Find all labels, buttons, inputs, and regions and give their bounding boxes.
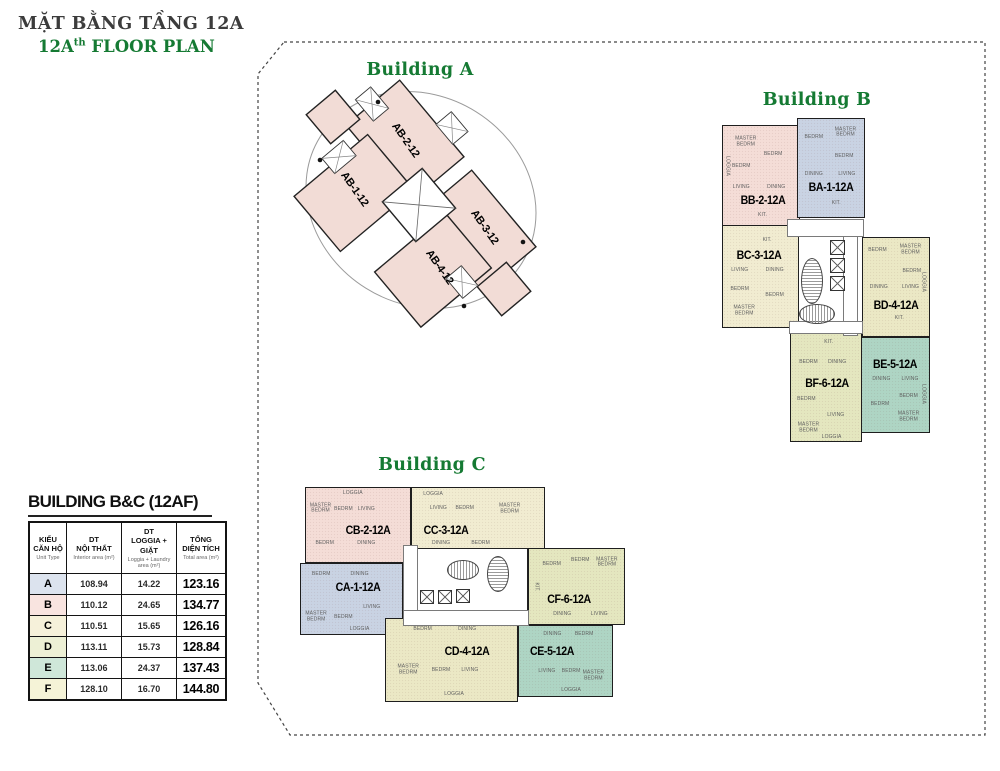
room-label: BEDRM [334, 506, 353, 512]
unit-type-cell: B [29, 595, 67, 616]
elevator-shaft [830, 258, 845, 273]
room-label: MASTER BEDRM [796, 422, 822, 434]
stair-oval [799, 304, 835, 324]
room-label: LOGGIA [921, 272, 927, 292]
room-label: MASTER BEDRM [731, 305, 757, 317]
room-label: BEDRM [732, 163, 751, 169]
unit-label: BB-2-12A [740, 195, 785, 207]
room-label: MASTER BEDRM [303, 611, 329, 623]
room-label: LOGGIA [423, 491, 443, 497]
room-label: LOGGIA [921, 385, 927, 405]
room-label: LIVING [538, 668, 555, 674]
room-label: BEDRM [562, 668, 581, 674]
unit-type-cell: A [29, 574, 67, 595]
elevator-shaft [830, 240, 845, 255]
table-row: D113.1115.73128.84 [29, 637, 226, 658]
corridor [787, 219, 864, 237]
unit-type-cell: E [29, 658, 67, 679]
room-label: LIVING [591, 611, 608, 617]
room-label: MASTER BEDRM [308, 503, 334, 515]
unit-CD-4-12A: BEDRMDININGMASTER BEDRMBEDRMLIVINGLOGGIA… [385, 618, 518, 702]
room-label: LIVING [363, 604, 380, 610]
room-label: BEDRM [312, 571, 331, 577]
column-header-main: KIỂU CĂN HỘ [33, 535, 63, 553]
unit-label: CD-4-12A [445, 646, 490, 658]
interior-area-cell: 128.10 [67, 679, 122, 701]
corridor [789, 321, 863, 334]
room-label: MASTER BEDRM [898, 244, 924, 256]
table-row: A108.9414.22123.16 [29, 574, 226, 595]
elevator-shaft [438, 590, 452, 604]
room-label: LIVING [827, 412, 844, 418]
stair-oval [487, 556, 509, 592]
room-label: MASTER BEDRM [395, 664, 421, 676]
legend-title: BUILDING B&C (12AF) [28, 492, 212, 517]
unit-label: BE-5-12A [873, 359, 917, 371]
column-header-sub: Total area (m²) [178, 555, 224, 561]
column-header: DT LOGGIA + GIẶTLoggia + Laundry area (m… [122, 522, 177, 574]
column-header: KIỂU CĂN HỘUnit Type [29, 522, 67, 574]
room-label: DINING [458, 626, 476, 632]
room-label: DINING [351, 571, 369, 577]
legend-panel: BUILDING B&C (12AF) KIỂU CĂN HỘUnit Type… [28, 492, 227, 701]
room-label: LIVING [902, 284, 919, 290]
floor-plan-page: AB-1-12 AB-2-12 AB-3-12 AB-4-12 MẶT BẰNG… [0, 0, 1000, 771]
room-label: DINING [766, 267, 784, 273]
interior-area-cell: 108.94 [67, 574, 122, 595]
room-label: BEDRM [471, 540, 490, 546]
room-label: LIVING [358, 506, 375, 512]
unit-BA-1-12A: BEDRMMASTER BEDRMBEDRMDININGLIVINGKIT.BA… [797, 118, 865, 218]
room-label: KIT. [832, 200, 841, 206]
total-area-cell: 128.84 [177, 637, 227, 658]
loggia-area-cell: 16.70 [122, 679, 177, 701]
interior-area-cell: 110.12 [67, 595, 122, 616]
room-label: LIVING [731, 267, 748, 273]
column-header: DT NỘI THẤTInterior area (m²) [67, 522, 122, 574]
unit-CE-5-12A: DININGBEDRMLIVINGBEDRMMASTER BEDRMLOGGIA… [518, 625, 613, 697]
room-label: KIT. [758, 212, 767, 218]
room-label: BEDRM [543, 561, 562, 567]
room-label: MASTER BEDRM [896, 411, 922, 423]
elevator-shaft [420, 590, 434, 604]
room-label: LOGGIA [343, 490, 363, 496]
room-label: LIVING [733, 184, 750, 190]
stair-oval [447, 560, 479, 580]
room-label: LIVING [901, 376, 918, 382]
room-label: BEDRM [432, 667, 451, 673]
room-label: BEDRM [799, 359, 818, 365]
room-label: DINING [828, 359, 846, 365]
interior-area-cell: 110.51 [67, 616, 122, 637]
column-header-sub: Unit Type [31, 555, 65, 561]
unit-label: CB-2-12A [346, 525, 391, 537]
corridor [403, 545, 418, 615]
unit-BD-4-12A: BEDRMMASTER BEDRMBEDRMDININGLIVINGKIT.LO… [862, 237, 930, 337]
room-label: DINING [767, 184, 785, 190]
room-label: DINING [870, 284, 888, 290]
unit-type-cell: D [29, 637, 67, 658]
column-header-main: TỔNG DIỆN TÍCH [182, 535, 220, 553]
loggia-area-cell: 24.37 [122, 658, 177, 679]
unit-label: BD-4-12A [874, 300, 919, 312]
unit-BF-6-12A: KIT.BEDRMDININGBEDRMLIVINGMASTER BEDRMLO… [790, 330, 862, 442]
loggia-area-cell: 24.65 [122, 595, 177, 616]
total-area-cell: 126.16 [177, 616, 227, 637]
room-label: MASTER BEDRM [594, 557, 620, 569]
unit-label: BF-6-12A [806, 378, 849, 390]
unit-CF-6-12A: BEDRMBEDRMMASTER BEDRMKIT.DININGLIVINGCF… [528, 548, 625, 625]
unit-BB-2-12A: MASTER BEDRMBEDRMBEDRMLIVINGDININGKIT.LO… [722, 125, 800, 228]
room-label: DINING [553, 611, 571, 617]
elevator-core [417, 548, 528, 614]
room-label: LOGGIA [350, 626, 370, 632]
room-label: LOGGIA [561, 687, 581, 693]
room-label: BEDRM [797, 396, 816, 402]
unit-label: BC-3-12A [736, 250, 781, 262]
room-label: BEDRM [765, 292, 784, 298]
room-label: MASTER BEDRM [733, 136, 759, 148]
room-label: DINING [357, 540, 375, 546]
total-area-cell: 137.43 [177, 658, 227, 679]
unit-CB-2-12A: LOGGIAMASTER BEDRMBEDRMLIVINGBEDRMDINING… [305, 487, 411, 563]
room-label: BEDRM [413, 626, 432, 632]
room-label: BEDRM [899, 393, 918, 399]
unit-type-cell: F [29, 679, 67, 701]
room-label: LIVING [838, 171, 855, 177]
room-label: LIVING [430, 505, 447, 511]
room-label: BEDRM [868, 247, 887, 253]
loggia-area-cell: 14.22 [122, 574, 177, 595]
interior-area-cell: 113.11 [67, 637, 122, 658]
total-area-cell: 144.80 [177, 679, 227, 701]
table-row: E113.0624.37137.43 [29, 658, 226, 679]
unit-type-cell: C [29, 616, 67, 637]
room-label: BEDRM [334, 614, 353, 620]
room-label: MASTER BEDRM [580, 671, 606, 683]
unit-BC-3-12A: LIVINGDININGBEDRMBEDRMMASTER BEDRMKIT.BC… [722, 225, 800, 328]
stair-oval [801, 258, 823, 304]
loggia-area-cell: 15.73 [122, 637, 177, 658]
room-label: KIT. [824, 339, 833, 345]
room-label: KIT. [763, 237, 772, 243]
unit-label: CF-6-12A [547, 594, 590, 606]
room-label: BEDRM [764, 151, 783, 157]
room-label: BEDRM [315, 540, 334, 546]
unit-label: BA-1-12A [809, 182, 854, 194]
column-header-main: DT NỘI THẤT [76, 535, 111, 553]
interior-area-cell: 113.06 [67, 658, 122, 679]
room-label: LOGGIA [725, 157, 731, 177]
unit-label: CC-3-12A [424, 525, 469, 537]
room-label: DINING [543, 631, 561, 637]
legend-table: KIỂU CĂN HỘUnit TypeDT NỘI THẤTInterior … [28, 521, 227, 701]
room-label: BEDRM [903, 268, 922, 274]
elevator-shaft [830, 276, 845, 291]
room-label: BEDRM [805, 134, 824, 140]
column-header: TỔNG DIỆN TÍCHTotal area (m²) [177, 522, 227, 574]
room-label: BEDRM [456, 505, 475, 511]
elevator-shaft [456, 589, 470, 603]
room-label: MASTER BEDRM [497, 504, 523, 516]
column-header-sub: Interior area (m²) [68, 555, 120, 561]
room-label: BEDRM [871, 401, 890, 407]
room-label: DINING [805, 171, 823, 177]
table-row: B110.1224.65134.77 [29, 595, 226, 616]
room-label: DINING [872, 376, 890, 382]
room-label: LIVING [461, 667, 478, 673]
unit-label: CA-1-12A [335, 582, 380, 594]
room-label: DINING [432, 540, 450, 546]
table-header-row: KIỂU CĂN HỘUnit TypeDT NỘI THẤTInterior … [29, 522, 226, 574]
room-label: KIT. [895, 315, 904, 321]
unit-BE-5-12A: DININGLIVINGBEDRMBEDRMMASTER BEDRMLOGGIA… [860, 337, 930, 433]
room-label: BEDRM [730, 286, 749, 292]
column-header-main: DT LOGGIA + GIẶT [131, 527, 167, 555]
room-label: BEDRM [835, 153, 854, 159]
table-row: F128.1016.70144.80 [29, 679, 226, 701]
room-label: LOGGIA [444, 691, 464, 697]
room-label: LOGGIA [822, 434, 842, 440]
table-row: C110.5115.65126.16 [29, 616, 226, 637]
unit-label: CE-5-12A [530, 646, 574, 658]
corridor [403, 610, 529, 626]
room-label: KIT. [534, 582, 540, 591]
total-area-cell: 123.16 [177, 574, 227, 595]
column-header-sub: Loggia + Laundry area (m²) [123, 557, 175, 569]
room-label: BEDRM [575, 631, 594, 637]
total-area-cell: 134.77 [177, 595, 227, 616]
loggia-area-cell: 15.65 [122, 616, 177, 637]
room-label: MASTER BEDRM [833, 127, 859, 139]
room-label: BEDRM [571, 557, 590, 563]
